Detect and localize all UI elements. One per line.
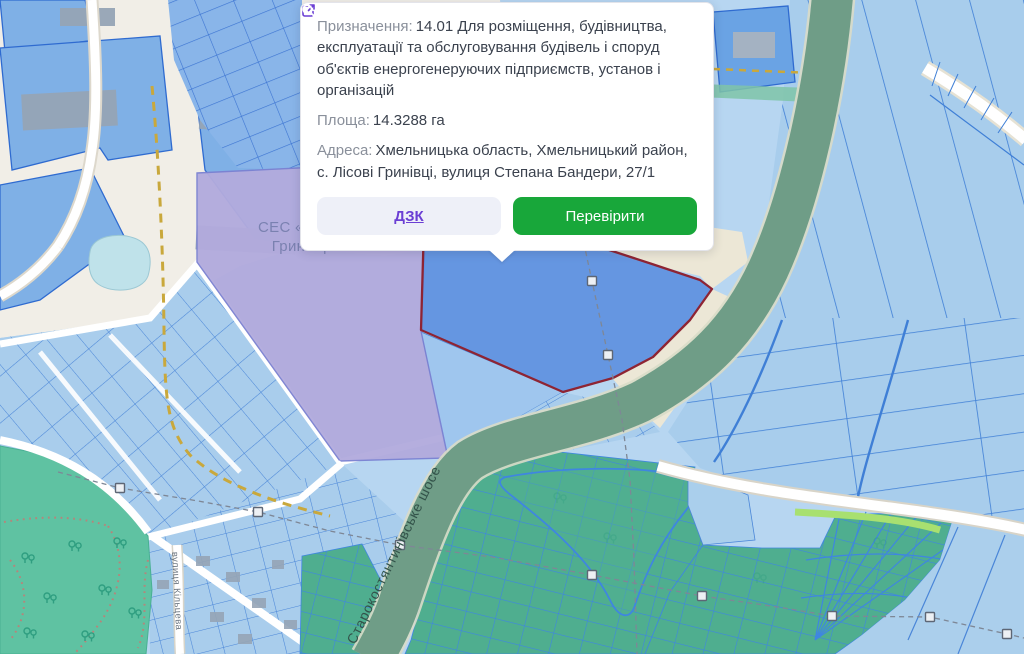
address-value: Хмельницька область, Хмельницький район,… <box>317 142 688 180</box>
cadastral-map-app: СЕС «Лісові Гринівці» Старокостянтинівсь… <box>0 0 1024 654</box>
area-label: Площа: <box>317 112 370 129</box>
search-icon <box>301 3 316 18</box>
dzk-button-label: ДЗК <box>394 208 423 225</box>
address-label: Адреса: <box>317 142 372 159</box>
area-row: Площа:14.3288 га <box>317 110 697 131</box>
popup-buttons: ДЗК Перевірити <box>317 197 697 235</box>
area-value: 14.3288 га <box>373 112 445 129</box>
pond <box>89 235 150 290</box>
purpose-row: Призначення:14.01 Для розміщення, будівн… <box>317 16 697 101</box>
verify-button[interactable]: Перевірити <box>513 197 697 235</box>
purpose-label: Призначення: <box>317 18 413 35</box>
popup-arrow <box>489 250 515 262</box>
address-row: Адреса:Хмельницька область, Хмельницький… <box>317 140 697 183</box>
dzk-link-button[interactable]: ДЗК <box>317 197 501 235</box>
parcel-info-popup: Призначення:14.01 Для розміщення, будівн… <box>300 2 714 251</box>
verify-button-label: Перевірити <box>565 208 644 225</box>
